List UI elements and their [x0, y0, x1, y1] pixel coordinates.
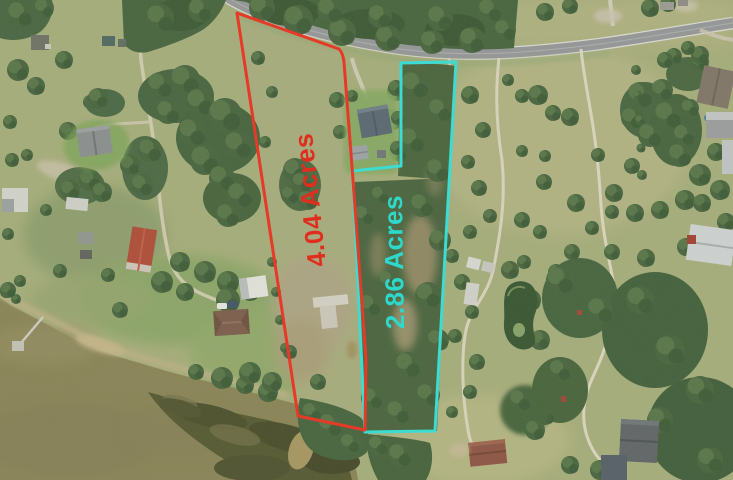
- svg-text:2.86 Acres: 2.86 Acres: [378, 195, 410, 330]
